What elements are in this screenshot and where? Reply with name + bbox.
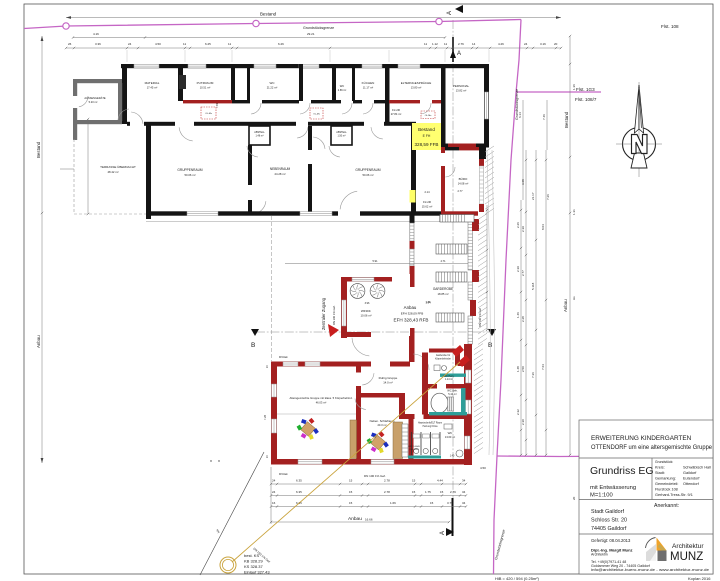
svg-text:Eutendorf: Eutendorf xyxy=(683,477,700,481)
svg-text:4.50: 4.50 xyxy=(480,466,486,470)
svg-text:FLUR: FLUR xyxy=(423,200,432,204)
svg-text:TERRASSE ÜBERDACHT: TERRASSE ÜBERDACHT xyxy=(100,165,136,169)
svg-text:34: 34 xyxy=(462,479,466,483)
svg-text:OL-Mx: OL-Mx xyxy=(313,114,320,116)
svg-text:6.25: 6.25 xyxy=(205,42,211,46)
svg-text:KÜCHEN: KÜCHEN xyxy=(362,81,375,85)
svg-text:3.16: 3.16 xyxy=(540,42,546,46)
svg-text:WC Beh.: WC Beh. xyxy=(447,389,458,393)
svg-text:4.44: 4.44 xyxy=(437,479,443,483)
svg-text:2.77: 2.77 xyxy=(457,189,463,193)
svg-text:Architektur: Architektur xyxy=(672,543,704,550)
svg-text:11: 11 xyxy=(424,42,427,46)
svg-text:6.14: 6.14 xyxy=(518,112,522,118)
svg-text:Koplan 2016: Koplan 2016 xyxy=(688,576,711,581)
svg-text:WINDF.: WINDF. xyxy=(361,309,371,313)
svg-text:2.28: 2.28 xyxy=(521,316,525,322)
svg-text:2.76: 2.76 xyxy=(458,42,464,46)
svg-text:15: 15 xyxy=(412,479,416,483)
svg-text:27.84 m²: 27.84 m² xyxy=(391,112,402,116)
svg-text:3.96: 3.96 xyxy=(365,302,370,305)
svg-text:24.28 m²: 24.28 m² xyxy=(274,172,285,176)
svg-text:AUSSENGERÄTE: AUSSENGERÄTE xyxy=(84,96,106,100)
svg-text:FUL-5884: FUL-5884 xyxy=(410,449,420,451)
svg-text:10.06 m²: 10.06 m² xyxy=(360,314,371,318)
svg-text:Schwäbisch Hall: Schwäbisch Hall xyxy=(683,466,711,470)
svg-text:1.40: 1.40 xyxy=(450,456,455,458)
svg-text:Stadt:: Stadt: xyxy=(655,471,665,475)
svg-text:2.78: 2.78 xyxy=(384,490,390,494)
svg-text:Anbau: Anbau xyxy=(563,299,568,312)
svg-text:15.62 m²: 15.62 m² xyxy=(422,205,433,209)
svg-text:1.36: 1.36 xyxy=(426,301,431,304)
svg-text:15: 15 xyxy=(349,490,353,494)
svg-text:Kreis:: Kreis: xyxy=(655,466,665,470)
svg-text:A: A xyxy=(457,51,461,57)
svg-text:7.36: 7.36 xyxy=(531,372,535,378)
svg-text:15: 15 xyxy=(349,501,353,505)
svg-text:FLUR: FLUR xyxy=(392,108,401,112)
svg-text:MATERIAL: MATERIAL xyxy=(145,81,160,85)
svg-text:OL-Mx: OL-Mx xyxy=(205,113,212,115)
svg-text:74405 Gaildorf: 74405 Gaildorf xyxy=(591,526,627,532)
svg-text:1.48 m²: 1.48 m² xyxy=(255,135,263,138)
svg-text:11: 11 xyxy=(444,42,447,46)
svg-text:GRUPPENRAUM: GRUPPENRAUM xyxy=(177,168,202,172)
svg-text:DVtisk: DVtisk xyxy=(279,355,288,359)
svg-text:2.39: 2.39 xyxy=(516,266,520,272)
svg-text:1.31: 1.31 xyxy=(572,209,576,215)
svg-text:18.85 m²: 18.85 m² xyxy=(437,292,448,296)
svg-text:4.16: 4.16 xyxy=(93,32,99,36)
svg-text:328,59 FFB: 328,59 FFB xyxy=(414,142,438,147)
svg-text:Anerkannt:: Anerkannt: xyxy=(654,503,679,509)
svg-text:13.80 m²: 13.80 m² xyxy=(411,86,422,90)
svg-text:2.86 m²: 2.86 m² xyxy=(338,89,347,92)
svg-text:Einlauf 327.43: Einlauf 327.43 xyxy=(244,570,270,575)
svg-text:PERSONAL: PERSONAL xyxy=(453,84,470,88)
svg-text:2.39: 2.39 xyxy=(521,226,525,232)
svg-text:50.06 m²: 50.06 m² xyxy=(184,173,195,177)
svg-text:29.21: 29.21 xyxy=(307,32,315,36)
svg-text:21.17: 21.17 xyxy=(531,192,535,200)
svg-text:Flst. 108/7: Flst. 108/7 xyxy=(575,97,597,102)
svg-text:mit Entwässerung: mit Entwässerung xyxy=(590,485,636,491)
svg-text:14: 14 xyxy=(472,42,476,46)
svg-text:Grundriss EG: Grundriss EG xyxy=(590,465,654,477)
svg-text:Anbau: Anbau xyxy=(36,335,41,348)
svg-text:Altersgemischte Gruppe mit kla: Altersgemischte Gruppe mit klass. 5 Körp… xyxy=(289,396,352,400)
svg-text:34: 34 xyxy=(462,490,466,494)
svg-text:11: 11 xyxy=(183,42,186,46)
svg-text:1.48: 1.48 xyxy=(516,366,520,372)
svg-text:LWC D-MHS: LWC D-MHS xyxy=(408,446,420,448)
svg-text:1.75: 1.75 xyxy=(425,490,431,494)
svg-text:7.26: 7.26 xyxy=(546,194,550,200)
svg-text:DN 100 1% Gef.: DN 100 1% Gef. xyxy=(332,305,336,325)
svg-text:GARDEROBE: GARDEROBE xyxy=(433,287,453,291)
svg-text:Flst. 1G3: Flst. 1G3 xyxy=(576,87,595,92)
svg-text:WC: WC xyxy=(340,84,345,88)
svg-text:13.82 m²: 13.82 m² xyxy=(456,89,467,93)
svg-text:A: A xyxy=(440,531,446,535)
svg-text:10.51 m²: 10.51 m² xyxy=(200,86,211,90)
svg-text:5.20 m²: 5.20 m² xyxy=(89,100,98,104)
svg-text:Heizung Klima: Heizung Klima xyxy=(423,426,439,428)
svg-text:OL-Mx: OL-Mx xyxy=(425,115,432,117)
svg-text:24: 24 xyxy=(524,42,528,46)
svg-text:Gemarkung:: Gemarkung: xyxy=(655,477,676,481)
svg-text:6.35: 6.35 xyxy=(296,490,302,494)
svg-text:2.32: 2.32 xyxy=(516,409,520,415)
svg-text:14.0 m²: 14.0 m² xyxy=(383,381,393,385)
svg-text:Gefertigt: 08.04.2013: Gefertigt: 08.04.2013 xyxy=(591,538,631,543)
svg-text:1.66: 1.66 xyxy=(390,501,396,505)
svg-text:OTTENDORF um eine altersgemisc: OTTENDORF um eine altersgemischte Gruppe xyxy=(591,444,712,451)
svg-text:Bestand: Bestand xyxy=(36,141,41,158)
svg-text:Garderobe für: Garderobe für xyxy=(436,354,451,357)
svg-text:5,44 m²: 5,44 m² xyxy=(448,393,457,396)
svg-text:Körperbehinder: Körperbehinder xyxy=(435,357,451,360)
svg-text:1.46: 1.46 xyxy=(516,312,520,318)
svg-text:Architektin: Architektin xyxy=(591,553,608,557)
svg-text:Flurstück 108: Flurstück 108 xyxy=(655,488,678,492)
svg-text:Hs: Hs xyxy=(572,296,576,300)
svg-text:B: B xyxy=(251,342,255,349)
svg-text:info@architektur-buero-munz.de: info@architektur-buero-munz.de - www.arc… xyxy=(591,568,709,572)
svg-text:Bestand: Bestand xyxy=(260,12,277,17)
svg-text:8.04: 8.04 xyxy=(541,224,545,230)
svg-text:5.118: 5.118 xyxy=(531,282,535,290)
svg-text:26: 26 xyxy=(68,42,72,46)
svg-text:15: 15 xyxy=(412,490,416,494)
svg-text:x: x xyxy=(210,458,212,463)
svg-text:15: 15 xyxy=(349,479,353,483)
svg-text:Grundstück:: Grundstück: xyxy=(655,460,673,464)
svg-text:Grundstücksgrenze: Grundstücksgrenze xyxy=(303,26,334,30)
svg-text:3.75: 3.75 xyxy=(447,501,453,505)
svg-text:DVtisk: DVtisk xyxy=(279,472,288,476)
svg-text:Bestand: Bestand xyxy=(418,127,435,132)
svg-text:KS 328.37: KS 328.37 xyxy=(244,564,263,569)
svg-text:best. KS: best. KS xyxy=(244,553,259,558)
svg-text:2.30: 2.30 xyxy=(521,419,525,425)
svg-text:21.22 m²: 21.22 m² xyxy=(267,86,278,90)
svg-text:PUTZRAUM: PUTZRAUM xyxy=(197,81,214,85)
svg-text:Bestand: Bestand xyxy=(564,111,569,128)
svg-text:M=1:100: M=1:100 xyxy=(590,493,613,499)
svg-text:GRUPPENRAUM: GRUPPENRAUM xyxy=(355,168,380,172)
svg-text:E FH: E FH xyxy=(423,134,431,138)
svg-text:7.81: 7.81 xyxy=(215,102,219,108)
svg-text:7.46: 7.46 xyxy=(542,114,546,120)
svg-text:24: 24 xyxy=(272,490,276,494)
svg-text:3.68: 3.68 xyxy=(521,179,525,185)
svg-text:15: 15 xyxy=(440,490,444,494)
svg-text:15: 15 xyxy=(430,501,434,505)
svg-text:48.42 m²: 48.42 m² xyxy=(107,170,118,174)
svg-text:Stadt Gaildorf: Stadt Gaildorf xyxy=(591,509,624,515)
svg-text:WC: WC xyxy=(270,81,276,85)
svg-text:24: 24 xyxy=(128,42,132,46)
svg-text:2.77: 2.77 xyxy=(521,270,525,276)
svg-text:4.50: 4.50 xyxy=(155,42,161,46)
svg-text:2.50: 2.50 xyxy=(521,366,525,372)
svg-text:17.45 m²: 17.45 m² xyxy=(147,86,158,90)
svg-text:2.79: 2.79 xyxy=(450,490,456,494)
svg-text:14.08 m²: 14.08 m² xyxy=(458,182,469,186)
svg-text:20.3 m²: 20.3 m² xyxy=(377,423,386,427)
svg-text:Gerhard-Tress-Str. 9/1: Gerhard-Tress-Str. 9/1 xyxy=(655,493,693,497)
svg-text:1.12: 1.12 xyxy=(432,42,438,46)
svg-text:Gaildorf: Gaildorf xyxy=(683,471,697,475)
svg-text:EFH 328,09 FFB: EFH 328,09 FFB xyxy=(401,312,424,316)
svg-text:BÜRO: BÜRO xyxy=(459,177,468,181)
svg-text:20: 20 xyxy=(572,496,576,500)
svg-text:7.64: 7.64 xyxy=(541,364,545,370)
svg-text:2.14: 2.14 xyxy=(424,190,430,194)
svg-text:EFH 328,43 RFB: EFH 328,43 RFB xyxy=(394,318,429,323)
svg-text:2.26: 2.26 xyxy=(516,222,520,228)
svg-text:WC: WC xyxy=(448,431,453,435)
svg-text:3.36: 3.36 xyxy=(95,42,101,46)
svg-text:Gemeindeteil:: Gemeindeteil: xyxy=(655,482,678,486)
svg-text:Ruhig Gruppe: Ruhig Gruppe xyxy=(379,376,398,380)
svg-text:Anbau: Anbau xyxy=(348,516,362,522)
svg-text:1.36: 1.36 xyxy=(572,84,576,90)
svg-text:KB 328.29: KB 328.29 xyxy=(244,559,263,564)
svg-text:A: A xyxy=(447,11,453,15)
svg-text:ELTERNGESPRÄCHE: ELTERNGESPRÄCHE xyxy=(401,81,431,85)
svg-text:Schloss Str. 20: Schloss Str. 20 xyxy=(591,518,627,524)
svg-text:5.91: 5.91 xyxy=(372,259,378,263)
svg-text:MUNZ: MUNZ xyxy=(670,551,703,563)
svg-text:Ottendorf: Ottendorf xyxy=(683,482,700,486)
svg-text:HiB = 420 / 594 (0.25m²): HiB = 420 / 594 (0.25m²) xyxy=(495,576,540,581)
svg-text:24: 24 xyxy=(272,479,276,483)
svg-text:13.60 m²: 13.60 m² xyxy=(445,435,455,439)
svg-text:6.26: 6.26 xyxy=(278,42,284,46)
svg-text:Flst. 108: Flst. 108 xyxy=(661,24,679,29)
svg-text:1.50 m²: 1.50 m² xyxy=(337,135,345,138)
svg-text:1.14 m²: 1.14 m² xyxy=(445,378,453,381)
svg-text:6.35: 6.35 xyxy=(296,479,302,483)
svg-text:7.26: 7.26 xyxy=(263,414,267,420)
svg-text:Haustechnik/ELT Raum: Haustechnik/ELT Raum xyxy=(418,422,442,425)
svg-text:11.17 m²: 11.17 m² xyxy=(363,86,374,90)
svg-text:Zentraler Zugang: Zentraler Zugang xyxy=(321,297,326,330)
svg-text:46.03 m²: 46.03 m² xyxy=(316,401,327,405)
svg-text:x: x xyxy=(218,458,220,463)
svg-text:4.26: 4.26 xyxy=(498,42,504,46)
svg-text:ERWEITERUNG KINDERGARTEN: ERWEITERUNG KINDERGARTEN xyxy=(591,435,692,442)
svg-text:50.06 m²: 50.06 m² xyxy=(362,173,373,177)
svg-text:16: 16 xyxy=(272,501,276,505)
svg-text:4.71: 4.71 xyxy=(440,259,446,263)
svg-text:2.78: 2.78 xyxy=(384,479,390,483)
svg-text:34: 34 xyxy=(462,501,466,505)
svg-text:Anbau: Anbau xyxy=(404,305,417,310)
svg-text:NEBENRAUM: NEBENRAUM xyxy=(270,167,291,171)
svg-text:11: 11 xyxy=(228,42,231,46)
svg-text:16.66: 16.66 xyxy=(365,518,373,522)
svg-text:20: 20 xyxy=(554,42,558,46)
svg-text:DN 100 1% Gef.: DN 100 1% Gef. xyxy=(364,474,386,478)
